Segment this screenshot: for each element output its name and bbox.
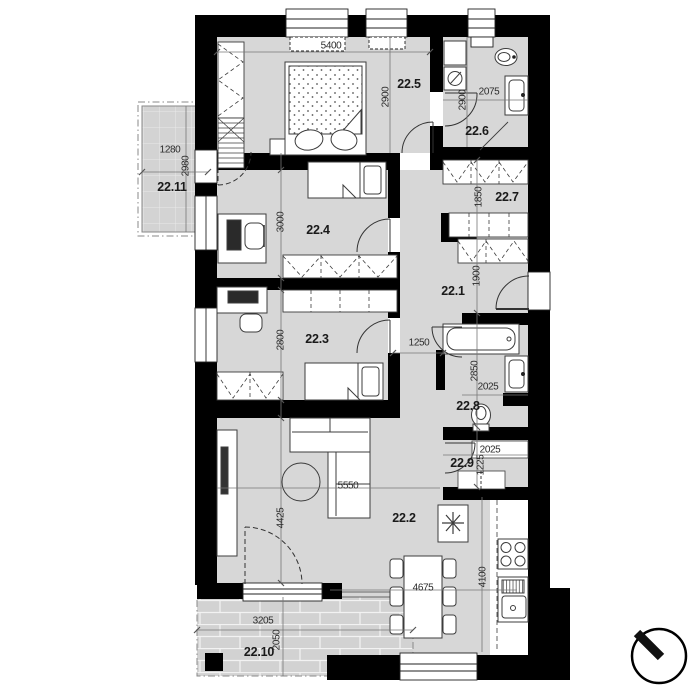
chair [443, 615, 456, 634]
chair [390, 559, 403, 578]
single-bed-room4 [308, 162, 386, 198]
bathtub [443, 324, 519, 354]
tv-cabinet [217, 430, 237, 556]
washbasin-top [505, 76, 528, 115]
dim-2025-bath: 2025 [478, 382, 499, 393]
window-sill-bath [471, 37, 493, 47]
stove [498, 539, 528, 569]
desk-room4 [218, 214, 266, 263]
curtain-box-right [369, 37, 405, 49]
north-arrow [632, 629, 686, 683]
dim-3000: 3000 [276, 212, 287, 233]
kitchen-sink [498, 577, 528, 622]
terrace-door[interactable] [243, 583, 322, 601]
dim-1280: 1280 [160, 145, 181, 156]
chair [443, 559, 456, 578]
dim-2900-bedroom: 2900 [381, 87, 392, 108]
dim-3205: 3205 [253, 616, 274, 627]
kitchen-counter [490, 500, 528, 650]
dim-2075: 2075 [479, 87, 500, 98]
wardrobe-closet-bottom [458, 239, 528, 263]
dim-4100: 4100 [478, 567, 489, 588]
room-label-22-11: 22.11 [157, 180, 187, 194]
entrance-door-opening[interactable] [528, 272, 550, 310]
dim-5550: 5550 [338, 481, 359, 492]
floor-plan: 22.5 22.6 22.7 22.4 22.11 22.1 22.3 22.8… [0, 0, 700, 700]
dim-1225: 1225 [476, 455, 487, 476]
fridge-snowflake [438, 505, 468, 542]
room-label-22-3: 22.3 [305, 332, 329, 346]
window-bedroom-right [366, 9, 407, 37]
dim-1250: 1250 [409, 338, 430, 349]
floor-plan-drawing [0, 0, 700, 700]
window-bathroom-top [468, 9, 495, 37]
dim-1850: 1850 [474, 187, 485, 208]
wardrobe-room4 [283, 255, 397, 278]
room-label-22-8: 22.8 [456, 399, 480, 413]
dim-2980: 2980 [181, 156, 192, 177]
washing-machine [444, 67, 466, 90]
dim-2900-bath: 2900 [458, 90, 469, 111]
chair [390, 615, 403, 634]
dim-2050: 2050 [272, 630, 283, 651]
balcony-door-opening[interactable] [195, 150, 217, 183]
room-label-22-10: 22.10 [244, 645, 274, 659]
dim-2800: 2800 [276, 330, 287, 351]
room-label-22-2: 22.2 [392, 511, 416, 525]
dim-2850: 2850 [470, 361, 481, 382]
tv [221, 447, 228, 494]
toilet-top [495, 49, 517, 66]
shelf-closet-mid [449, 213, 528, 237]
window-dining [400, 653, 477, 680]
room-label-22-9: 22.9 [450, 456, 474, 470]
dim-4425: 4425 [276, 508, 287, 529]
office-chair-room3 [240, 314, 262, 332]
room-label-22-1: 22.1 [441, 284, 465, 298]
room-label-22-5: 22.5 [397, 77, 421, 91]
dim-1900: 1900 [472, 266, 483, 287]
washbasin-mid [505, 356, 528, 392]
room-label-22-6: 22.6 [465, 124, 489, 138]
office-chair-room4 [245, 223, 264, 249]
single-bed-room3 [305, 363, 383, 400]
shaft [444, 41, 466, 65]
room-label-22-7: 22.7 [495, 190, 519, 204]
dim-4675: 4675 [413, 583, 434, 594]
window-bedroom-left [286, 9, 348, 37]
room-label-22-4: 22.4 [306, 223, 330, 237]
dim-5400: 5400 [321, 41, 342, 52]
dining-table [390, 556, 456, 638]
